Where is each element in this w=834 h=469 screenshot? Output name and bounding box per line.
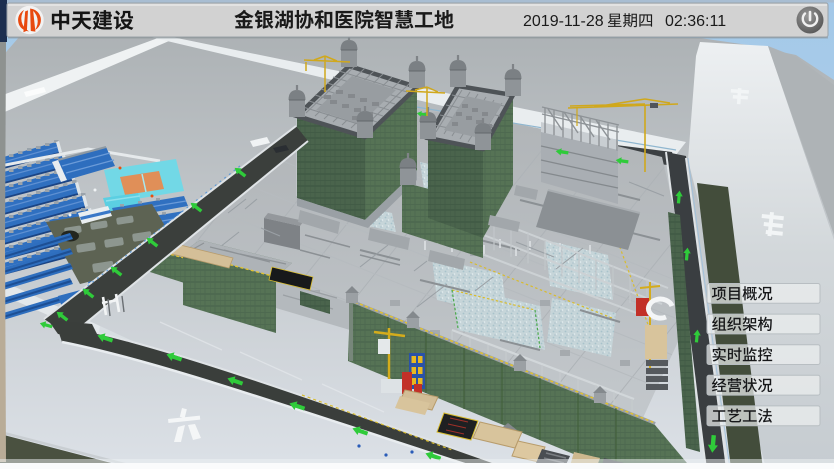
svg-text:02:36:11: 02:36:11: [665, 13, 726, 30]
svg-text:2019-11-28: 2019-11-28: [523, 13, 604, 30]
